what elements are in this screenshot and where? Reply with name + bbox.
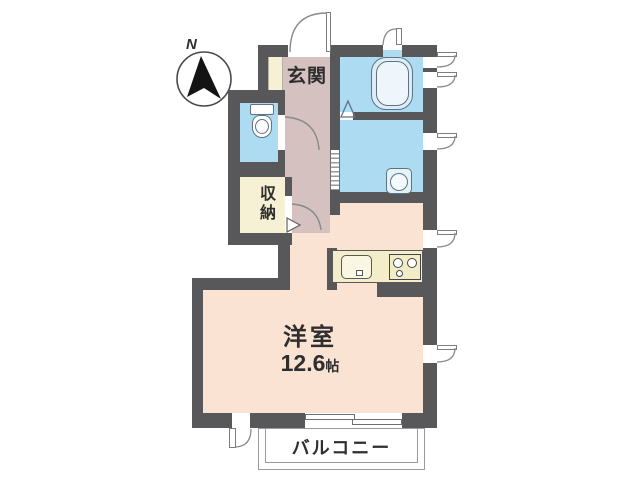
casement-window-leaf — [437, 133, 457, 138]
main-room-size-value: 12.6 — [281, 350, 326, 376]
wall-segment — [423, 248, 437, 345]
washroom-sliding-door — [330, 150, 340, 190]
north-arrow-icon — [187, 56, 221, 99]
toilet-icon — [250, 104, 274, 115]
main-room-label: 洋室 — [230, 317, 390, 352]
compass-north-label: N — [186, 36, 197, 53]
entrance-door-leaf — [326, 12, 331, 52]
wall-segment — [250, 413, 305, 428]
stove-burner — [393, 258, 403, 268]
main-room-size: 12.6帖 — [230, 350, 390, 377]
toilet-seat — [255, 119, 269, 134]
wall-segment — [423, 45, 437, 52]
floor-plan: N 玄関 収納 洋室 12.6帖 バルコニー — [0, 0, 640, 480]
wall-segment — [423, 150, 437, 230]
storage-doorway — [285, 196, 292, 233]
wall-segment — [423, 88, 437, 133]
window-arc — [437, 233, 455, 247]
casement-window-leaf — [229, 428, 236, 448]
main-room-size-unit: 帖 — [325, 358, 339, 374]
wall-segment — [228, 233, 292, 245]
doorway-floor — [292, 233, 330, 245]
compass-circle — [177, 52, 231, 106]
stove-burners-icon — [389, 254, 421, 280]
wall-segment — [330, 192, 423, 203]
wall-segment — [377, 282, 425, 297]
toilet-doorway — [278, 115, 285, 150]
stove-burner — [407, 258, 417, 268]
wall-segment — [353, 112, 423, 120]
casement-window-leaf — [437, 72, 457, 77]
window-arc — [236, 429, 251, 447]
window-arc — [437, 348, 455, 362]
stove-burner — [396, 270, 403, 277]
sink-drain — [356, 270, 363, 276]
balcony-sliding-door-panel — [305, 414, 355, 420]
casement-window-leaf — [437, 52, 457, 57]
casement-window-leaf — [437, 345, 457, 350]
washbasin-bowl — [390, 173, 408, 191]
wall-segment — [330, 45, 340, 150]
wall-segment — [192, 278, 203, 428]
wall-segment — [423, 68, 437, 72]
balcony-label: バルコニー — [265, 434, 418, 460]
bathtub-inner — [376, 61, 409, 106]
kitchen-floor — [330, 203, 423, 250]
wall-segment — [228, 162, 285, 177]
wall-segment — [423, 363, 437, 413]
wall-segment — [278, 103, 285, 115]
balcony-sliding-door-panel — [352, 419, 402, 425]
casement-window-leaf — [437, 230, 457, 235]
wall-segment — [402, 413, 437, 428]
wall-segment — [278, 150, 285, 162]
wall-segment — [192, 278, 290, 290]
shoe-cabinet — [268, 55, 283, 93]
window-arc — [383, 29, 396, 45]
casement-window-leaf — [396, 28, 402, 45]
entrance-doorway — [288, 45, 330, 57]
entrance-label: 玄関 — [287, 61, 327, 88]
storage-label: 収納 — [253, 185, 277, 223]
